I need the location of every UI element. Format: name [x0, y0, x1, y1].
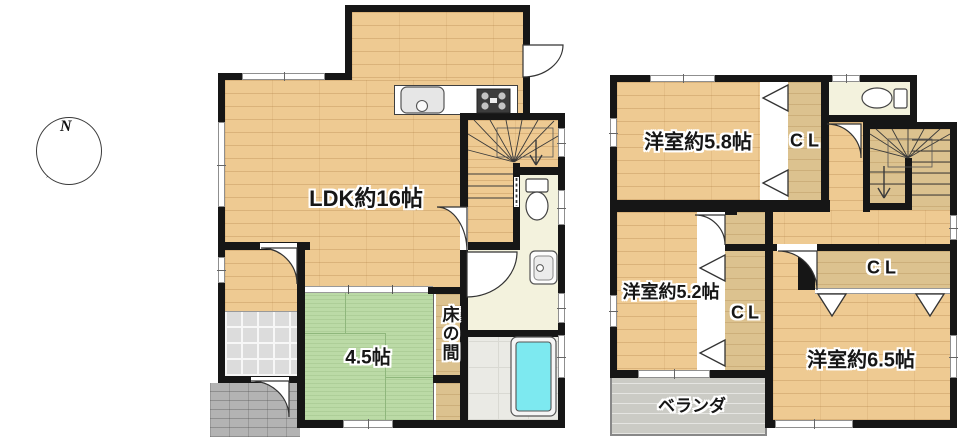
label-closet-5-8: CL — [790, 131, 824, 152]
bathtub-icon — [511, 337, 556, 416]
kitchen-sink-icon — [401, 87, 444, 113]
stairs-2f — [870, 129, 950, 198]
label-tatami: 4.5帖 — [345, 343, 390, 370]
door-arc-washroom — [467, 252, 517, 297]
door-arc-entry-1f — [523, 45, 563, 77]
door-arc-ldk-hall — [437, 207, 467, 252]
door-arc-room-6-5 — [778, 251, 817, 290]
door-arc-genkan-porch — [251, 381, 289, 417]
toilet-2f-icon — [862, 88, 907, 108]
plan-linework — [0, 0, 978, 440]
door-arc-ldk-genkan — [261, 248, 297, 284]
label-room-6-5: 洋室約6.5帖 — [807, 344, 915, 373]
label-closet-6-5: CL — [867, 258, 901, 279]
label-veranda: ベランダ — [658, 392, 726, 417]
stairs-1f — [468, 120, 558, 206]
floorplan-canvas: N LDK約16帖 4.5帖 床の間 洋室約5.8帖 CL 洋室約5.2帖 CL… — [0, 0, 978, 440]
stove-icon — [477, 89, 510, 113]
toilet-1f-icon — [526, 179, 548, 220]
label-tokonoma: 床の間 — [437, 306, 462, 363]
washbasin-icon — [530, 251, 557, 284]
compass-north-label: N — [60, 118, 72, 136]
label-room-5-8: 洋室約5.8帖 — [644, 126, 752, 155]
label-room-5-2: 洋室約5.2帖 — [622, 278, 719, 304]
door-arc-room-5-2 — [695, 215, 725, 245]
label-closet-5-2: CL — [731, 303, 763, 324]
door-arc-toilet-2f — [827, 124, 861, 158]
label-ldk: LDK約16帖 — [309, 181, 423, 213]
